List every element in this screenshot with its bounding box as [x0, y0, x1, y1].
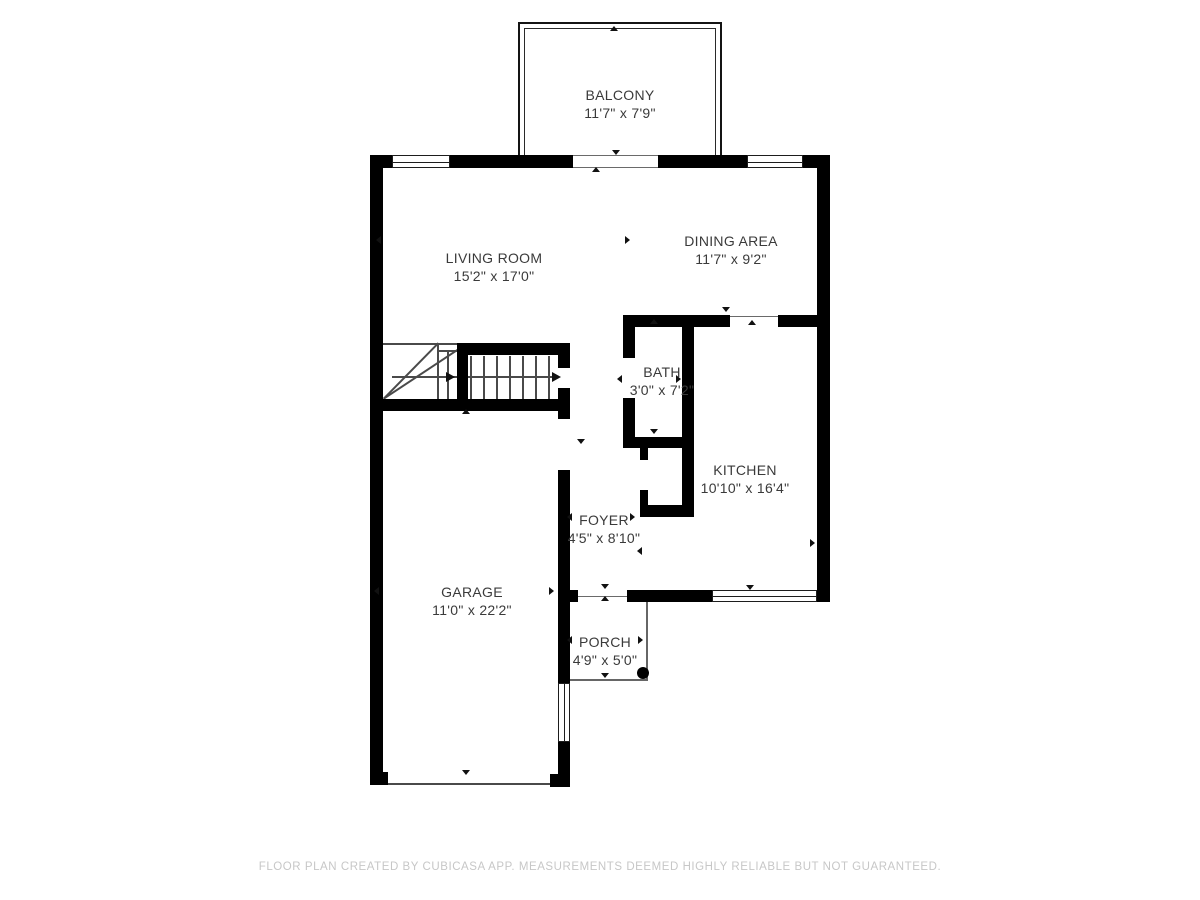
pantry-left-stub — [640, 448, 648, 460]
pantry-bottom-wall — [640, 505, 694, 517]
arrow-marker-icon — [722, 307, 730, 312]
room-name: PORCH — [573, 633, 638, 651]
bath-dining-wall — [623, 315, 730, 327]
arrow-marker-icon — [374, 587, 379, 595]
bath-dining-wall — [778, 315, 817, 327]
arrow-marker-icon — [462, 770, 470, 775]
arrow-marker-icon — [610, 26, 618, 31]
exterior-wall-top — [450, 155, 573, 168]
window — [558, 683, 570, 742]
arrow-marker-icon — [650, 319, 658, 324]
garage-wall-cap — [558, 411, 570, 419]
arrow-marker-icon — [637, 547, 642, 555]
room-dims: 4'9" x 5'0" — [573, 651, 638, 669]
bath-bottom-wall — [623, 437, 694, 448]
arrow-marker-icon — [638, 636, 643, 644]
arrow-marker-icon — [462, 409, 470, 414]
room-label-bath: BATH 3'0" x 7'2" — [630, 363, 695, 399]
arrow-marker-icon — [625, 236, 630, 244]
garage-right-wall — [558, 470, 570, 683]
front-wall — [627, 590, 712, 602]
exterior-wall-left-foot — [383, 772, 388, 785]
room-label-balcony: BALCONY 11'7" x 7'9" — [584, 86, 656, 122]
arrow-marker-icon — [549, 587, 554, 595]
stair-direction-arrow-icon — [552, 372, 561, 382]
arrow-marker-icon — [592, 167, 600, 172]
arrow-marker-icon — [376, 236, 381, 244]
room-name: FOYER — [568, 511, 641, 529]
stair-tread-line — [509, 356, 511, 399]
bath-left-wall — [623, 327, 635, 358]
pantry-left-stub — [640, 490, 648, 505]
porch-post — [637, 667, 649, 679]
exterior-wall-right — [817, 155, 830, 602]
room-label-foyer: FOYER 4'5" x 8'10" — [568, 511, 641, 547]
stair-direction-line — [392, 376, 554, 378]
footer-disclaimer: FLOOR PLAN CREATED BY CUBICASA APP. MEAS… — [0, 861, 1200, 873]
stairs-bottom-wall — [370, 399, 570, 411]
arrow-marker-icon — [746, 585, 754, 590]
room-dims: 11'7" x 7'9" — [584, 104, 656, 122]
stair-tread-line — [470, 356, 472, 399]
garage-door-line — [383, 783, 558, 785]
stairs-top-wall — [457, 343, 570, 355]
arrow-marker-icon — [650, 429, 658, 434]
arrow-marker-icon — [810, 539, 815, 547]
arrow-marker-icon — [617, 375, 622, 383]
room-dims: 11'7" x 9'2" — [684, 250, 778, 268]
arrow-marker-icon — [748, 320, 756, 325]
room-label-kitchen: KITCHEN 10'10" x 16'4" — [701, 461, 790, 497]
stairs-right-cap — [558, 343, 570, 368]
stair-tread-line — [522, 356, 524, 399]
room-label-living-room: LIVING ROOM 15'2" x 17'0" — [446, 249, 543, 285]
stair-tread-line — [483, 356, 485, 399]
garage-wall-foot — [550, 774, 558, 787]
stair-direction-arrow-icon — [446, 372, 455, 382]
room-dims: 3'0" x 7'2" — [630, 381, 695, 399]
room-dims: 10'10" x 16'4" — [701, 479, 790, 497]
stairs-right-cap — [558, 388, 570, 399]
arrow-marker-icon — [612, 150, 620, 155]
room-label-garage: GARAGE 11'0" x 22'2" — [432, 583, 512, 619]
room-dims: 15'2" x 17'0" — [446, 267, 543, 285]
room-dims: 4'5" x 8'10" — [568, 529, 641, 547]
window — [392, 155, 450, 168]
room-name: LIVING ROOM — [446, 249, 543, 267]
arrow-marker-icon — [577, 439, 585, 444]
balcony-door-opening — [573, 155, 658, 168]
bath-kitchen-wall — [682, 327, 694, 517]
exterior-wall-left — [370, 155, 383, 785]
arrow-marker-icon — [601, 596, 609, 601]
room-label-porch: PORCH 4'9" x 5'0" — [573, 633, 638, 669]
stair-tread-line — [535, 356, 537, 399]
room-name: KITCHEN — [701, 461, 790, 479]
arrow-marker-icon — [601, 584, 609, 589]
room-dims: 11'0" x 22'2" — [432, 601, 512, 619]
window — [712, 590, 817, 602]
exterior-wall-top — [658, 155, 747, 168]
stair-tread-line — [496, 356, 498, 399]
stairs-mid-wall — [457, 343, 468, 411]
porch-edge-line — [570, 679, 648, 681]
arrow-marker-icon — [567, 636, 572, 644]
room-name: BALCONY — [584, 86, 656, 104]
arrow-marker-icon — [601, 673, 609, 678]
room-name: BATH — [630, 363, 695, 381]
room-name: DINING AREA — [684, 232, 778, 250]
garage-right-wall — [558, 742, 570, 787]
room-label-dining-area: DINING AREA 11'7" x 9'2" — [684, 232, 778, 268]
stair-winder-top-line — [383, 343, 457, 345]
floor-plan-canvas: BALCONY 11'7" x 7'9" LIVING ROOM 15'2" x… — [0, 0, 1200, 900]
stair-tread-line — [437, 350, 457, 352]
window — [747, 155, 803, 168]
room-name: GARAGE — [432, 583, 512, 601]
stair-tread-line — [548, 356, 550, 399]
